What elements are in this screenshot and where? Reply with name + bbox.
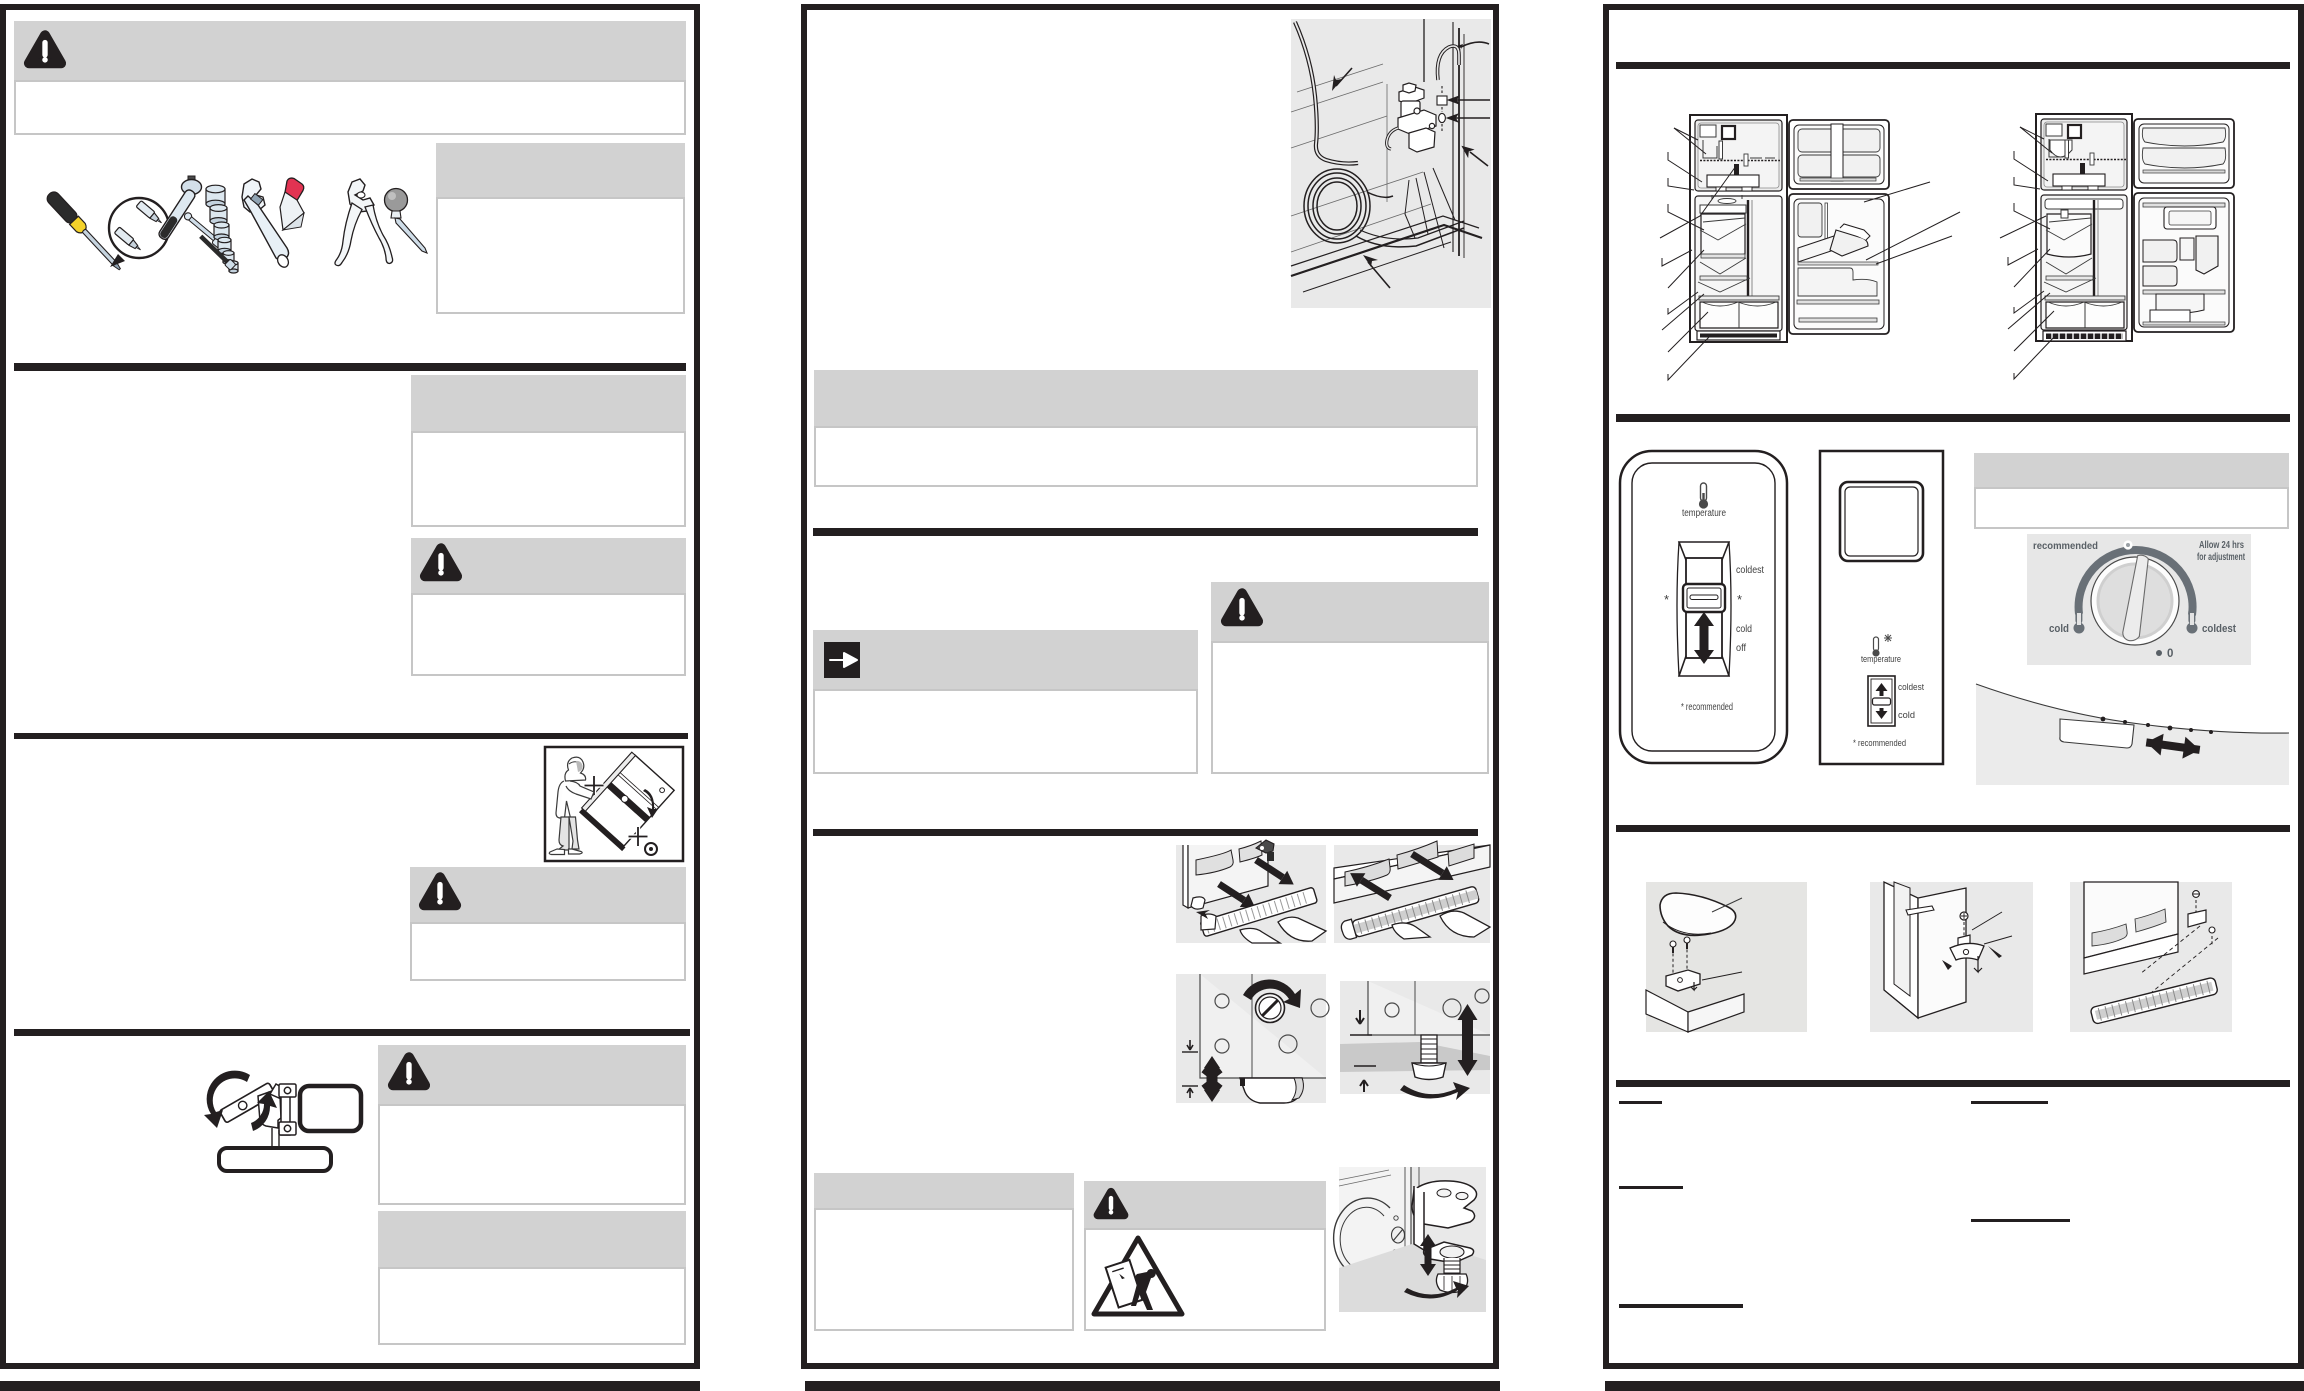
svg-text:Allow 24 hrs: Allow 24 hrs: [2199, 540, 2244, 551]
svg-text:for adjustment: for adjustment: [2197, 552, 2245, 563]
svg-text:*: *: [1737, 592, 1742, 607]
svg-text:off: off: [1736, 643, 1746, 654]
svg-text:* recommended: * recommended: [1853, 738, 1906, 749]
svg-text:recommended: recommended: [2033, 540, 2098, 552]
svg-text:temperature: temperature: [1682, 508, 1726, 519]
svg-text:cold: cold: [1898, 710, 1915, 721]
svg-text:coldest: coldest: [2202, 623, 2236, 635]
svg-text:coldest: coldest: [1736, 565, 1764, 576]
svg-text:coldest: coldest: [1898, 682, 1924, 693]
svg-text:cold: cold: [2049, 623, 2069, 635]
svg-text:temperature: temperature: [1861, 654, 1901, 665]
svg-text:0: 0: [2167, 648, 2173, 660]
svg-text:*: *: [1664, 592, 1669, 607]
svg-text:* recommended: * recommended: [1681, 702, 1733, 713]
svg-text:cold: cold: [1736, 624, 1752, 635]
